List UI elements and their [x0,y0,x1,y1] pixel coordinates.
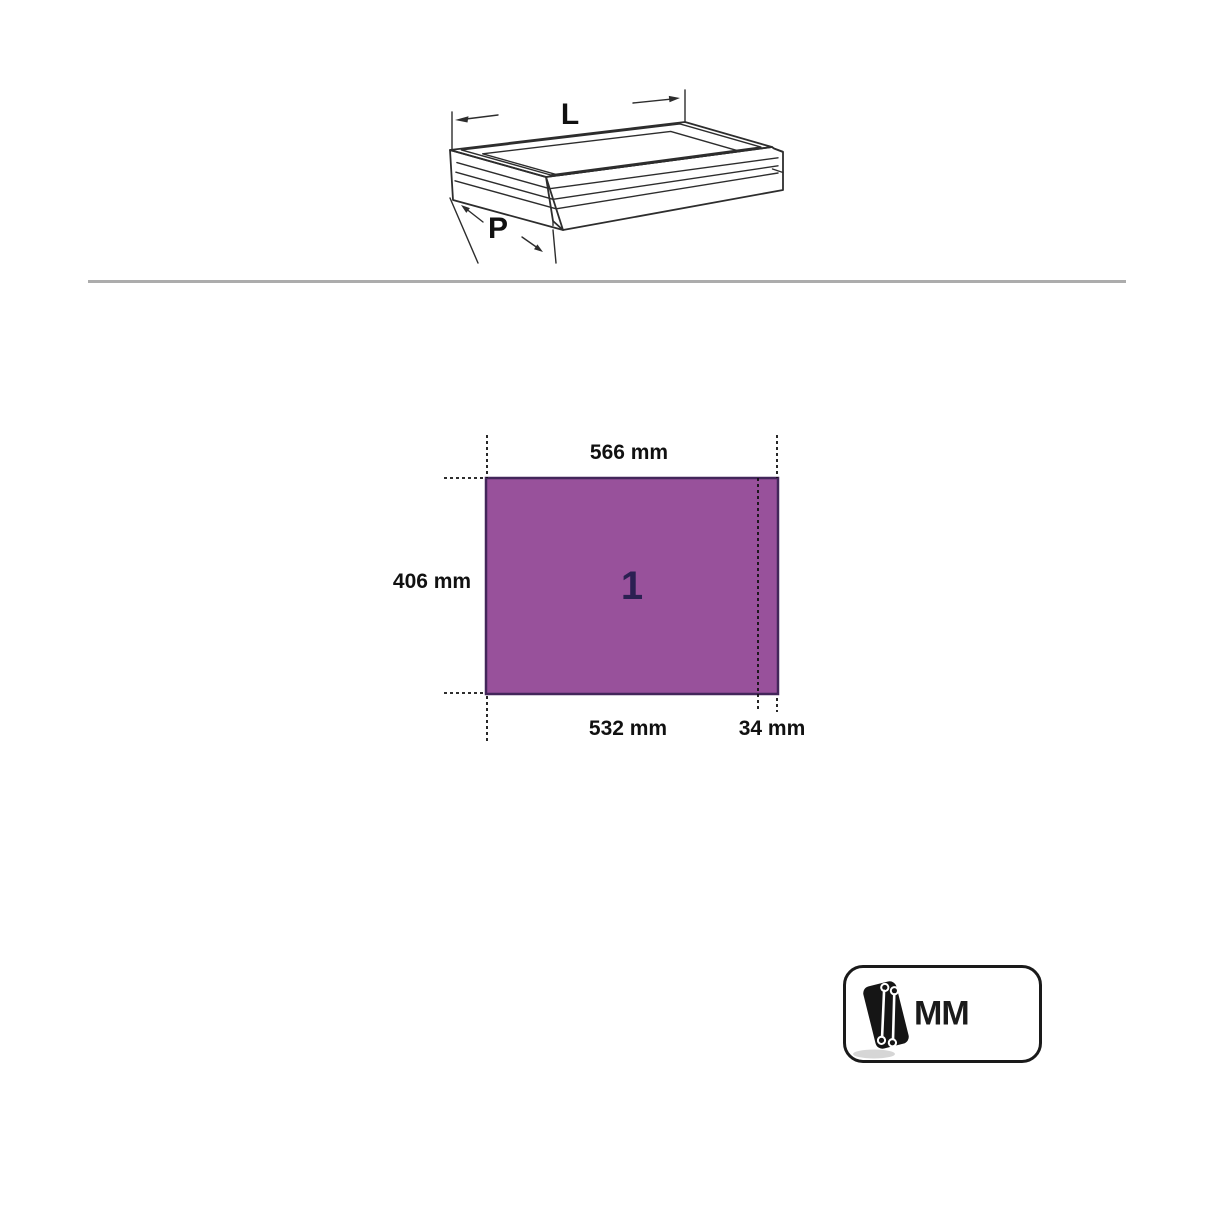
drawer-isometric-figure: L P [430,78,810,278]
panel-number: 1 [621,564,643,608]
dim-width-bottom-right: 34 mm [739,717,806,740]
divider-rule [88,280,1126,283]
unit-badge: MM [843,965,1042,1063]
length-dimension: L [452,90,685,151]
unit-badge-label: MM [914,995,969,1034]
depth-dimension: P [450,198,556,263]
depth-label: P [488,212,508,245]
length-label: L [561,98,579,131]
catalog-diagram-page: L P 566 mm 406 mm 532 m [0,0,1214,1214]
drawer-dimension-diagram: 566 mm 406 mm 532 mm 34 mm 1 [370,420,840,760]
dim-height-left: 406 mm [393,570,471,593]
dim-width-top: 566 mm [590,441,668,464]
dim-width-bottom: 532 mm [589,717,667,740]
